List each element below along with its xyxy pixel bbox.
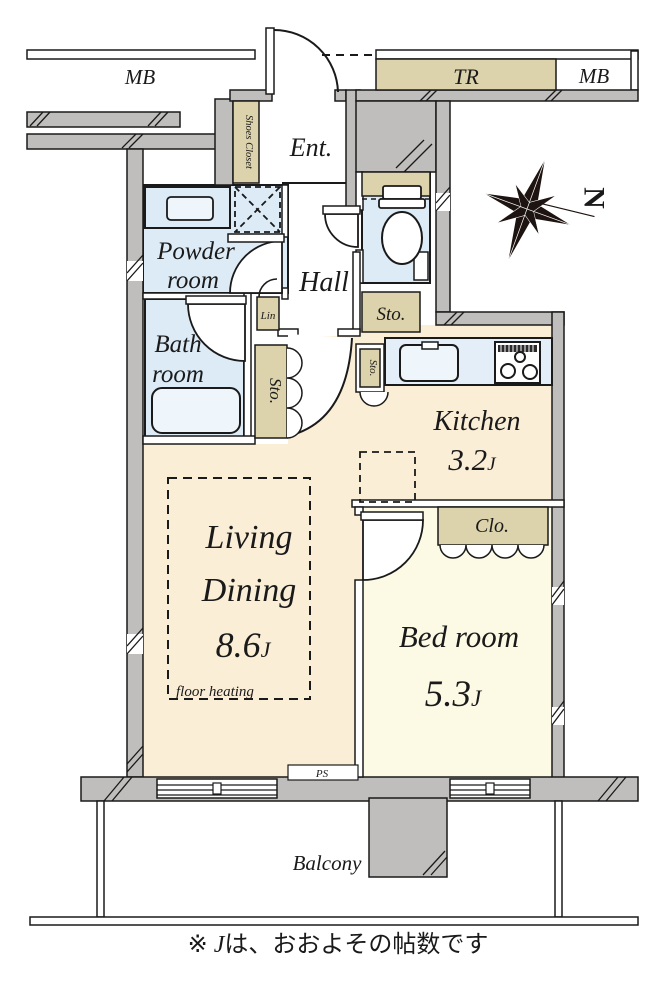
bedroom-window — [450, 779, 530, 798]
living-dining-label-1: Living — [205, 519, 293, 556]
shoes-closet-label: Shoes Closet — [243, 115, 254, 170]
compass-north-label: N — [578, 187, 611, 209]
balcony-right-rail — [555, 801, 562, 917]
wall-bedroom-top — [352, 500, 564, 507]
storage-tall-folding-doors — [287, 348, 302, 438]
balcony-left-rail — [97, 801, 104, 917]
footnote: ※ Jは、おおよその帖数です — [188, 931, 489, 958]
balcony-pillar — [369, 798, 447, 877]
kitchen-sink — [400, 345, 458, 381]
powder-label-2: room — [167, 267, 219, 294]
bedroom-door-leaf — [361, 512, 423, 520]
bath-door-leaf — [186, 296, 246, 304]
floor-plan-drawing: N MB TR MB Ent. Shoes Closet Hall Powder… — [0, 0, 666, 984]
powder-label-1: Powder — [156, 238, 235, 265]
floor-plan: N MB TR MB Ent. Shoes Closet Hall Powder… — [0, 0, 666, 984]
hall-label: Hall — [298, 267, 349, 298]
toilet-door-leaf — [323, 206, 360, 214]
ld-window — [157, 779, 277, 798]
toilet-lid — [379, 199, 425, 208]
wall-entry-top-right — [335, 90, 346, 101]
bedroom-label: Bed room — [399, 619, 519, 654]
linen-label: Lin — [260, 310, 276, 322]
storage-hall-label: Sto. — [376, 304, 405, 325]
living-dining-label-2: Dining — [201, 572, 296, 609]
wall-hall-ld-stub-right — [338, 329, 360, 336]
toilet-bowl — [382, 212, 422, 264]
entrance-label: Ent. — [289, 133, 333, 162]
stove — [495, 342, 540, 383]
kitchen-label: Kitchen — [432, 406, 520, 437]
kitchen-sink-notch — [422, 342, 438, 349]
wall-bedroom-left — [355, 580, 363, 777]
mb-left-label: MB — [124, 65, 155, 89]
pipe-space-label: PS — [315, 768, 329, 780]
wall-block-above-toilet — [356, 101, 436, 172]
bath-label-1: Bath — [154, 331, 201, 358]
balcony-label: Balcony — [293, 851, 362, 875]
wall-hall-kitchen — [353, 252, 360, 332]
wall-bath-ld — [143, 436, 255, 444]
tr-label: TR — [453, 64, 479, 89]
wall-top-band — [356, 90, 638, 101]
floor-heating-label: floor heating — [176, 684, 254, 700]
wall-top-bar1 — [27, 112, 180, 127]
closet-label: Clo. — [475, 515, 509, 537]
storage-kitchen-label: Sto. — [367, 360, 379, 377]
storage-tall-label: Sto. — [266, 378, 285, 404]
bath-label-2: room — [152, 361, 204, 388]
corridor-line-right-end — [631, 51, 638, 90]
wall-powder-hall-upper — [282, 185, 288, 237]
wall-entry-left — [215, 99, 233, 185]
bathtub — [152, 388, 240, 433]
mb-right-label: MB — [578, 64, 609, 88]
balcony-front-rail — [30, 917, 638, 925]
entrance-door-leaf — [266, 28, 274, 94]
corridor-line-right — [376, 50, 638, 59]
living-dining-floor — [143, 444, 363, 777]
corridor-line-left — [27, 50, 255, 59]
wall-left — [127, 149, 143, 777]
toilet-tank — [383, 186, 421, 199]
powder-door-leaf — [228, 234, 284, 242]
vanity-sink — [167, 197, 213, 220]
